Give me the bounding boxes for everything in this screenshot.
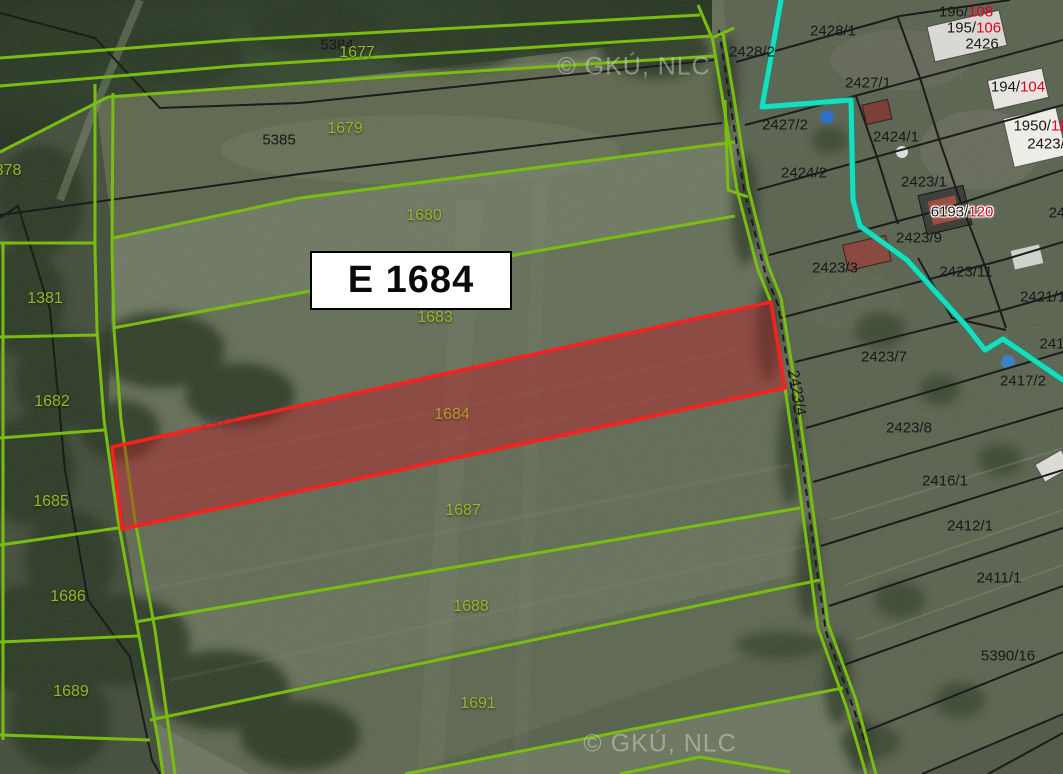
selected-parcel-label: E 1684 [310,251,512,310]
selected-parcel-label-text: E 1684 [348,259,474,302]
selected-parcel-highlight[interactable] [112,302,785,529]
parcel-boundaries-overlay [0,0,1063,774]
cadastral-map[interactable]: 53841677© GKÚ, NLC5385167937816801381168… [0,0,1063,774]
